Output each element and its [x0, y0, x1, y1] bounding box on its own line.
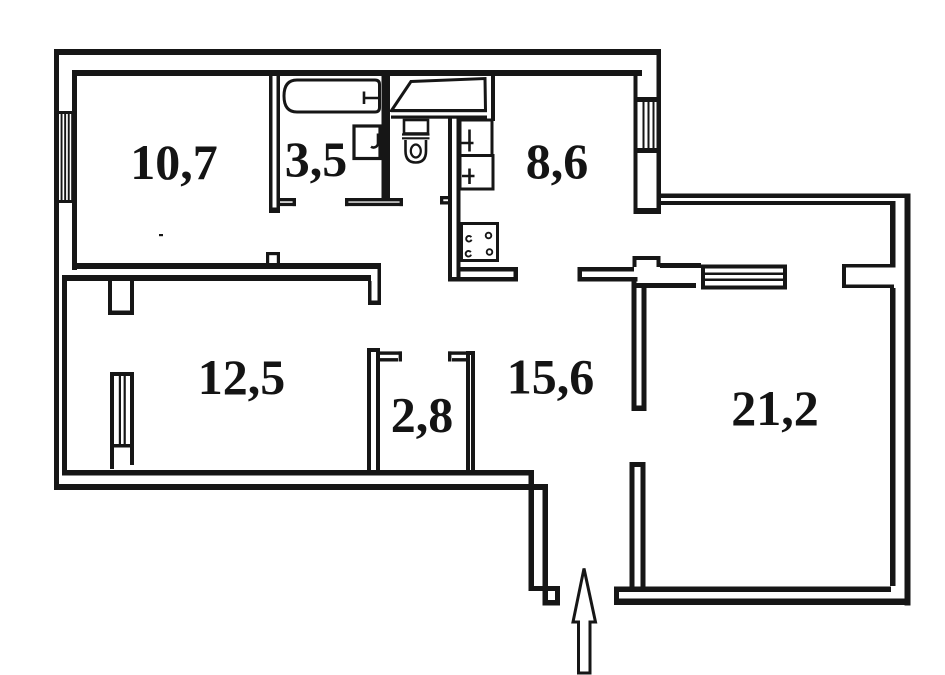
svg-text:10,7: 10,7 [130, 134, 218, 190]
svg-text:15,6: 15,6 [507, 349, 595, 405]
svg-text:8,6: 8,6 [526, 133, 589, 189]
svg-text:3,5: 3,5 [285, 131, 348, 187]
svg-text:12,5: 12,5 [198, 349, 286, 405]
svg-text:21,2: 21,2 [731, 380, 819, 436]
svg-text:2,8: 2,8 [391, 387, 454, 443]
